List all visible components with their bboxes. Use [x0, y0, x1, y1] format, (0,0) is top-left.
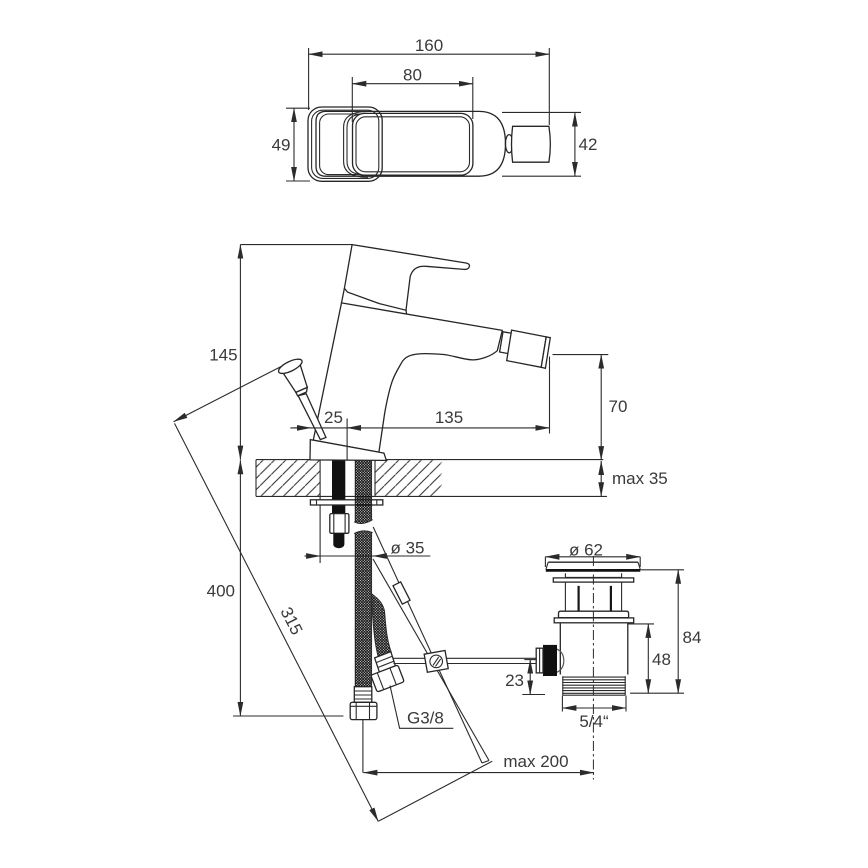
- svg-text:160: 160: [415, 36, 443, 55]
- svg-text:48: 48: [652, 650, 671, 669]
- svg-text:25: 25: [324, 408, 343, 427]
- svg-text:23: 23: [505, 671, 524, 690]
- svg-text:49: 49: [272, 136, 291, 155]
- svg-text:42: 42: [579, 135, 598, 154]
- svg-text:80: 80: [403, 66, 422, 85]
- svg-text:G3/8: G3/8: [407, 709, 444, 728]
- svg-text:84: 84: [683, 628, 702, 647]
- svg-text:max 35: max 35: [612, 469, 668, 488]
- svg-text:max 200: max 200: [503, 752, 568, 771]
- svg-text:400: 400: [207, 582, 235, 601]
- svg-text:145: 145: [209, 346, 237, 365]
- svg-text:5/4“: 5/4“: [579, 712, 609, 731]
- svg-text:ø 62: ø 62: [569, 541, 603, 560]
- svg-text:135: 135: [435, 408, 463, 427]
- svg-text:ø 35: ø 35: [391, 539, 425, 558]
- svg-text:70: 70: [609, 397, 628, 416]
